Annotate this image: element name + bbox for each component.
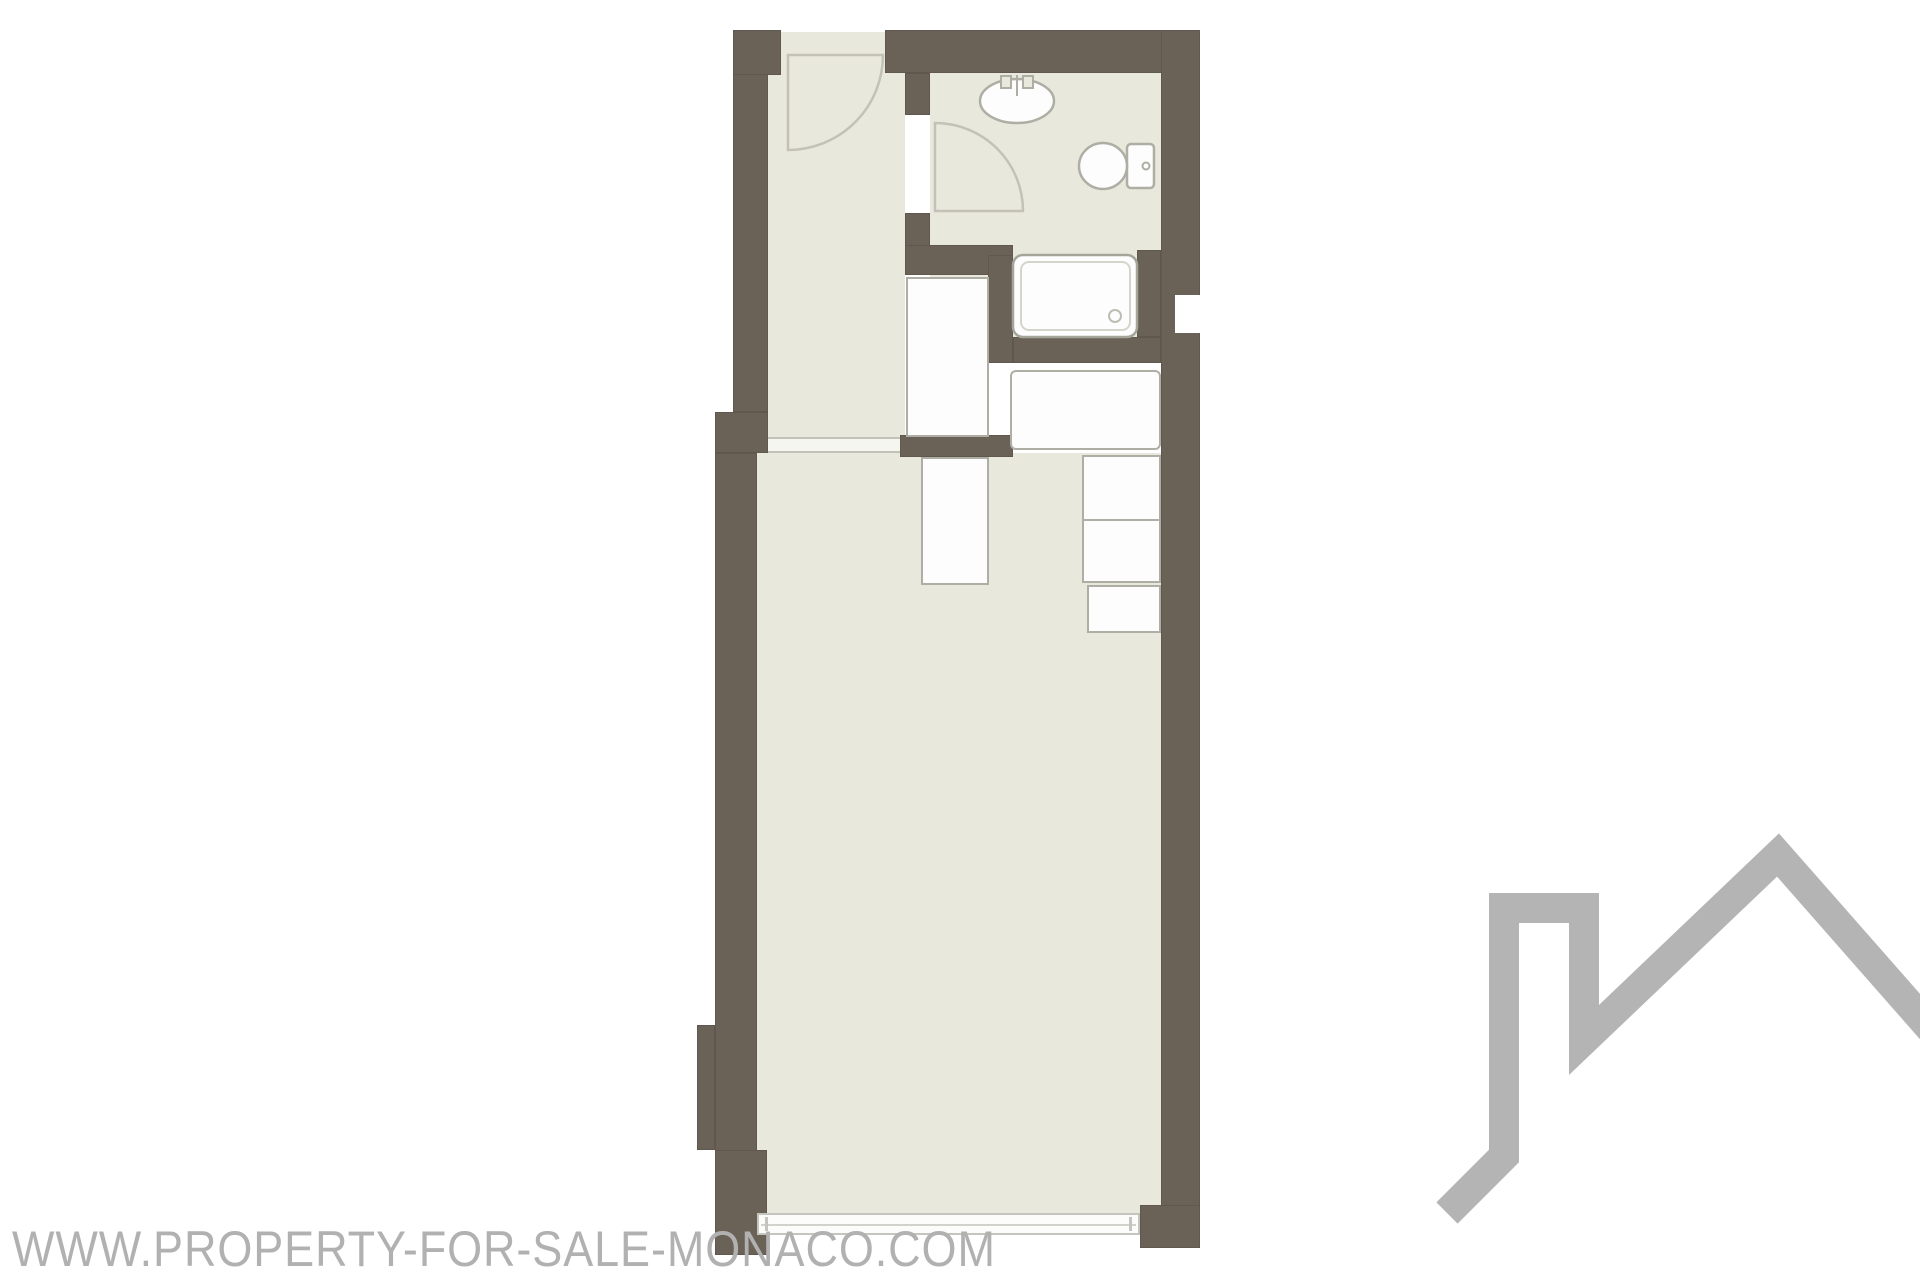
house-roofline-with-chimney-icon [1447, 855, 1920, 1213]
bathroom-door-swing-icon [935, 123, 1023, 211]
entry-door-swing-icon [788, 55, 883, 150]
watermark: WWW.PROPERTY-FOR-SALE-MONACO.COM [12, 1220, 996, 1278]
fixtures-layer [0, 0, 1920, 1280]
floor-plan-page: WWW.PROPERTY-FOR-SALE-MONACO.COM [0, 0, 1920, 1280]
bathtub-icon [1013, 255, 1137, 337]
toilet-icon [1079, 143, 1154, 189]
washbasin-icon [980, 75, 1054, 123]
